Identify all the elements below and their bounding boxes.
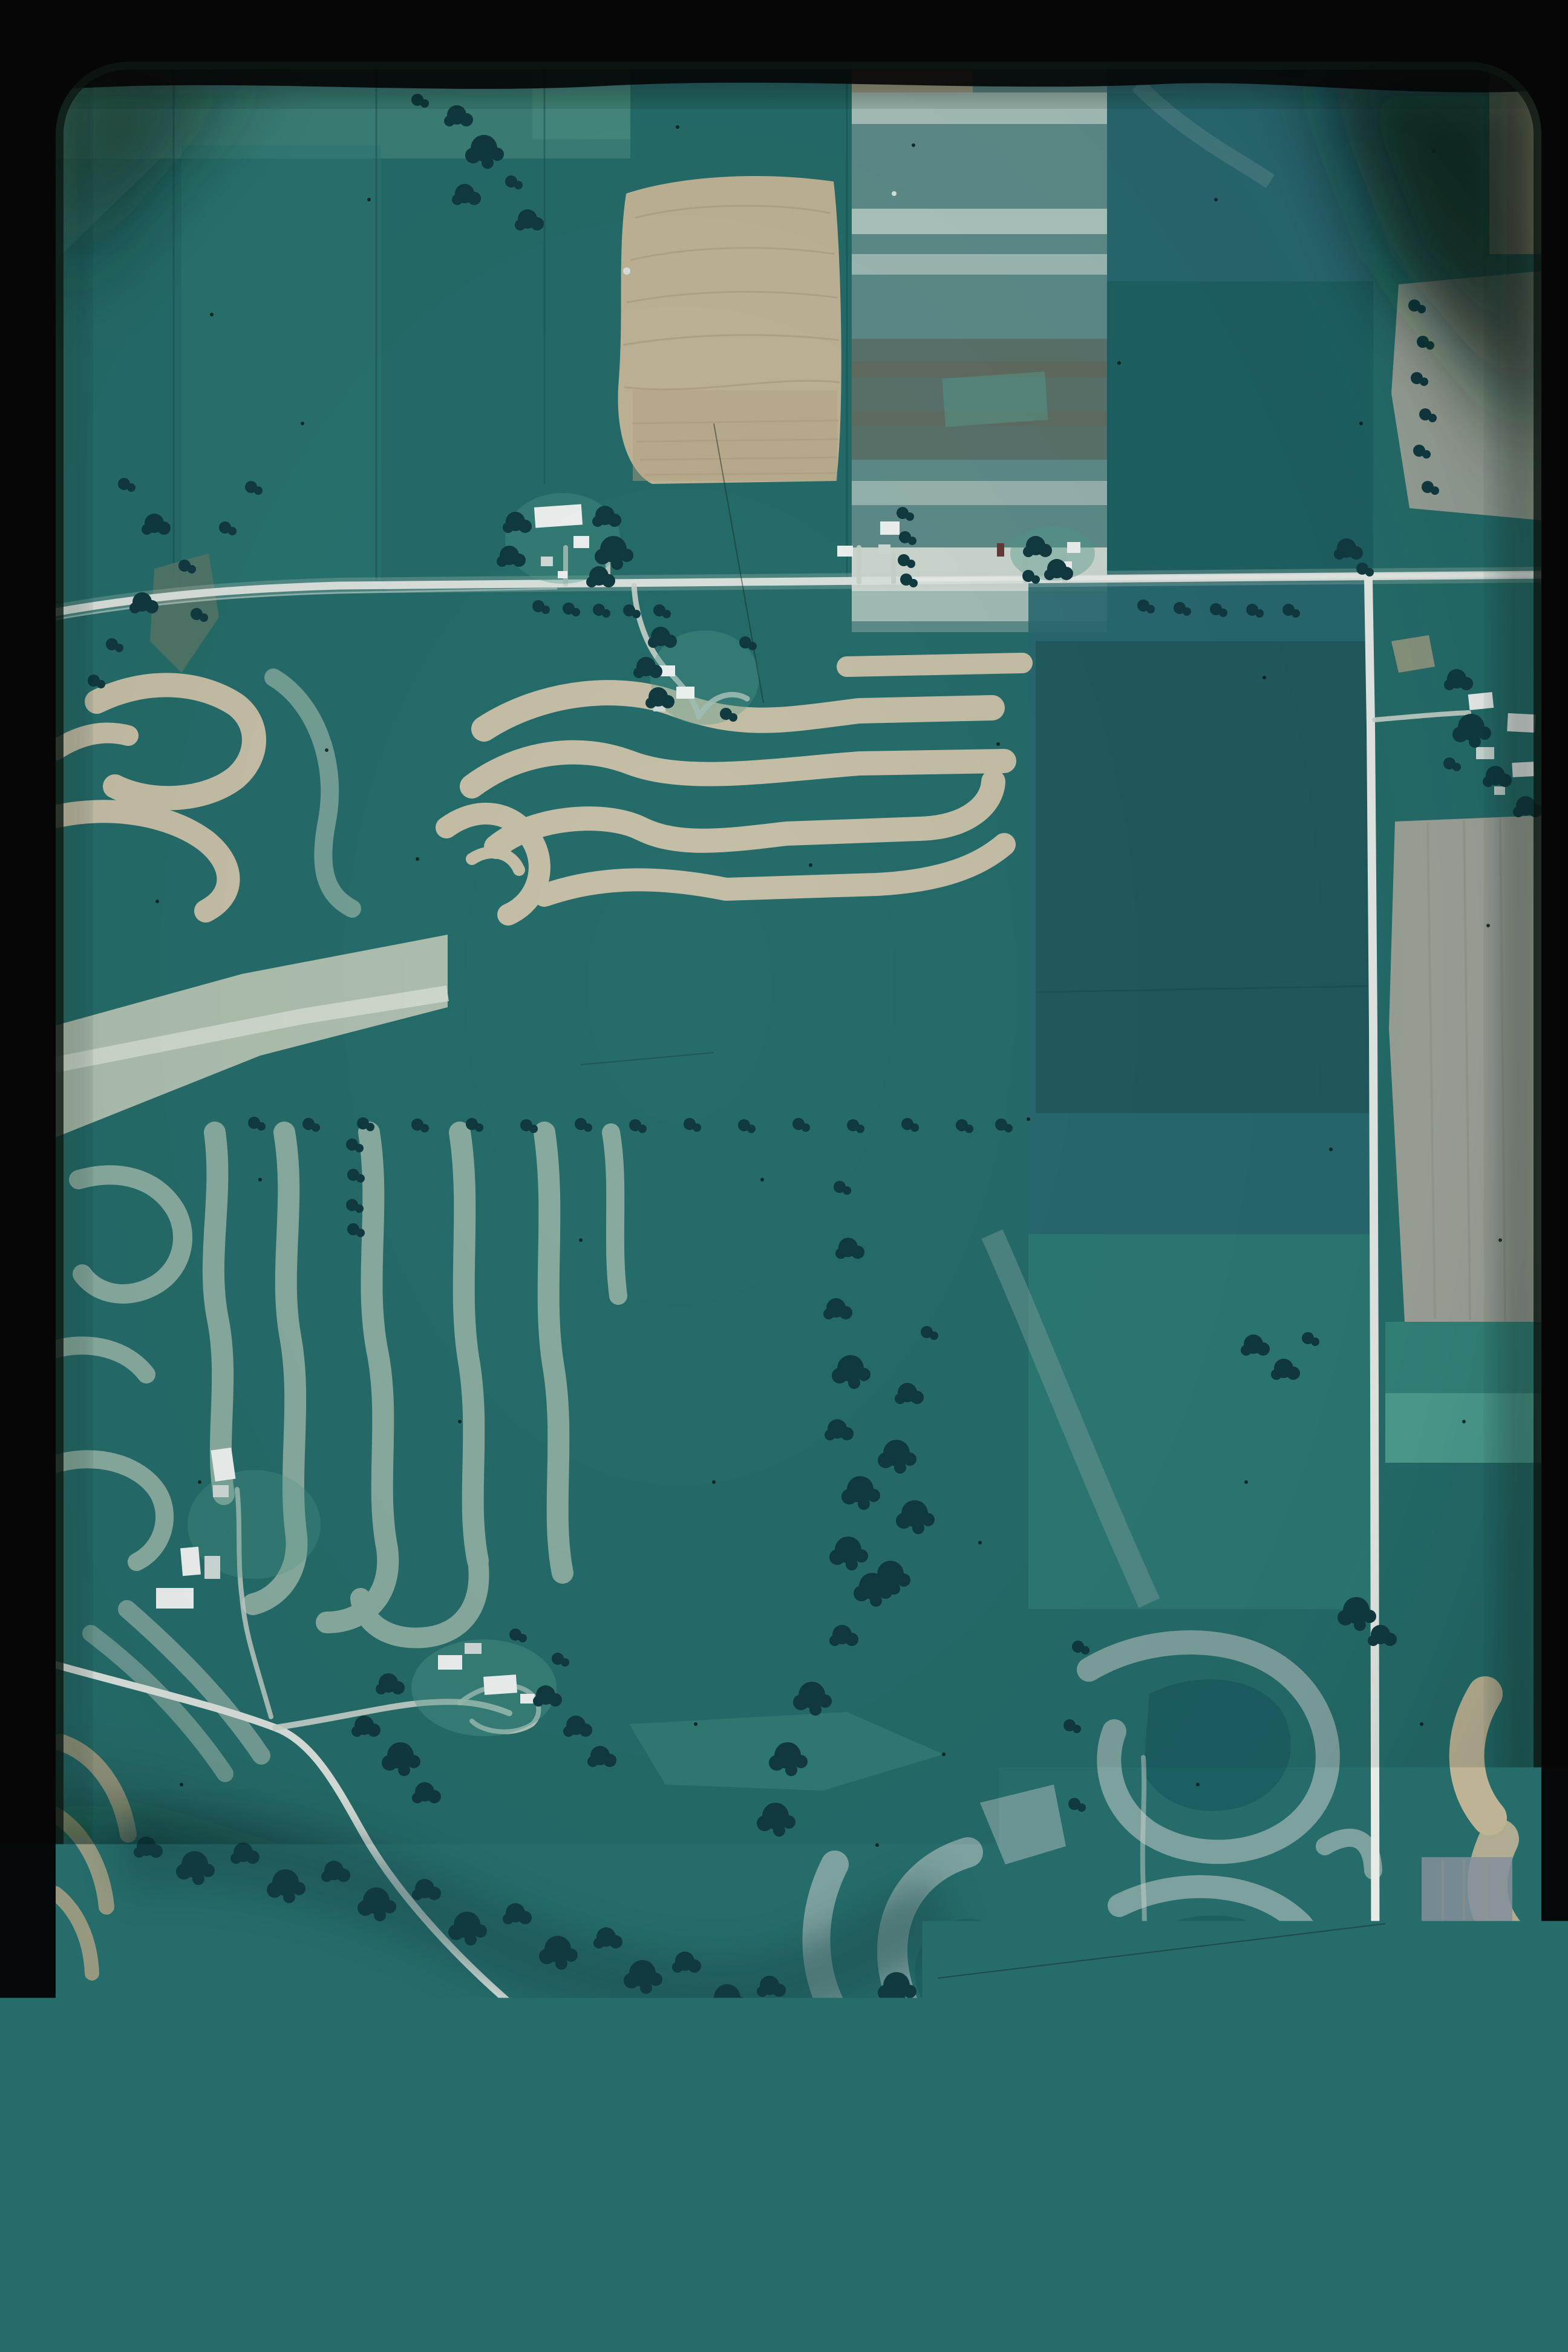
slide-mount [0,0,1568,2352]
aerial-photo-slide [0,0,1568,2352]
vignettes [0,36,1541,2264]
photo [0,36,1542,2264]
